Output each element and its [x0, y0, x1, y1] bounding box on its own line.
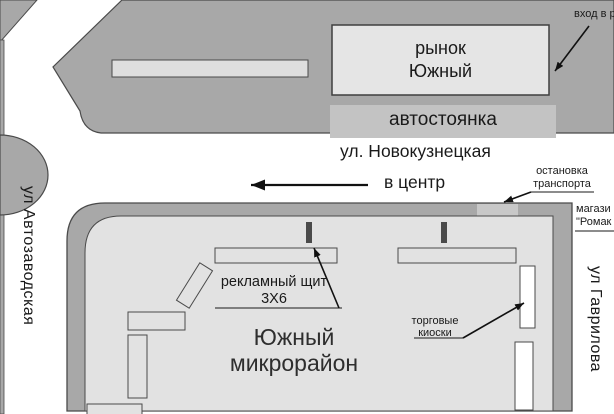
- stop-label-line2: транспорта: [533, 178, 591, 190]
- street-avtozavodskaya-label: ул Автозаводская: [19, 186, 37, 391]
- entrance-label: вход в р: [574, 8, 614, 20]
- building-rect: [87, 404, 142, 414]
- corner-triangle: [0, 0, 37, 42]
- billboard-label-line2: 3Х6: [261, 291, 287, 307]
- kiosk-rect: [520, 266, 535, 328]
- shop-label-line1: магази: [576, 203, 611, 215]
- stop-label: остановкатранспорта: [528, 165, 596, 190]
- building-rect: [128, 335, 147, 398]
- bus-stop-zone: [477, 204, 518, 216]
- district-label: Южныймикрорайон: [178, 324, 410, 376]
- building-rect: [398, 248, 516, 263]
- street-novokuznetskaya-label: ул. Новокузнецкая: [340, 141, 491, 162]
- kiosk-rect: [515, 342, 533, 410]
- market-label: рынокЮжный: [332, 37, 549, 83]
- kiosks-label-line1: торговые: [412, 315, 459, 327]
- shop-label: магази"Ромак: [576, 203, 614, 228]
- shop-label-line2: "Ромак: [576, 216, 611, 228]
- kiosks-label-line2: киоски: [418, 327, 452, 339]
- billboard-label-line1: рекламный щит: [221, 274, 327, 290]
- district-label-line2: микрорайон: [230, 350, 358, 376]
- parking-label: автостоянка: [330, 109, 556, 131]
- stop-arrow: [504, 192, 531, 202]
- to-center-label: в центр: [384, 172, 445, 193]
- building-rect: [128, 312, 185, 330]
- billboard-tick: [306, 222, 312, 243]
- district-label-line1: Южный: [254, 324, 335, 350]
- billboard-tick: [441, 222, 447, 243]
- left-curb: [0, 40, 4, 414]
- market-inner-building: [112, 60, 308, 77]
- street-gavrilova-label: ул Гаврилова: [586, 266, 604, 391]
- kiosks-label: торговыекиоски: [404, 316, 466, 339]
- market-label-line2: Южный: [409, 61, 472, 81]
- market-label-line1: рынок: [415, 38, 466, 58]
- stop-label-line1: остановка: [536, 165, 588, 177]
- map-canvas: рынокЮжный автостоянка ул. Новокузнецкая…: [0, 0, 614, 414]
- billboard-label: рекламный щит3Х6: [200, 274, 348, 307]
